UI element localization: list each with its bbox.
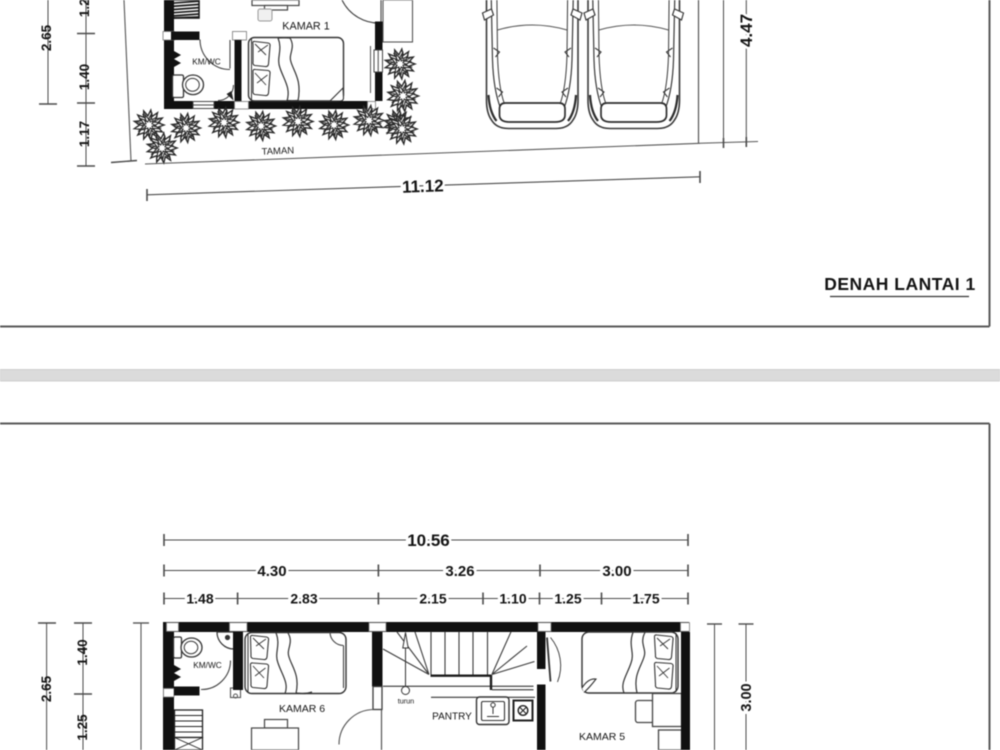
svg-text:1.25: 1.25 [75, 714, 90, 741]
svg-text:1.10: 1.10 [499, 591, 526, 607]
svg-text:3.00: 3.00 [602, 563, 631, 580]
svg-text:2.83: 2.83 [290, 591, 317, 607]
svg-text:TAMAN: TAMAN [261, 145, 294, 157]
svg-text:11.12: 11.12 [402, 176, 444, 196]
svg-text:2.15: 2.15 [419, 591, 446, 607]
svg-text:4.47: 4.47 [737, 14, 756, 47]
svg-text:2.65: 2.65 [39, 675, 54, 702]
svg-text:KM/WC: KM/WC [193, 660, 222, 670]
svg-text:KAMAR 5: KAMAR 5 [579, 731, 625, 743]
svg-text:10.56: 10.56 [407, 531, 450, 550]
svg-text:KM/WC: KM/WC [192, 57, 221, 67]
svg-text:2.65: 2.65 [39, 24, 54, 51]
svg-text:4.30: 4.30 [257, 563, 286, 580]
svg-text:1.40: 1.40 [75, 639, 90, 665]
svg-text:3.00: 3.00 [739, 683, 755, 711]
svg-text:1.48: 1.48 [186, 591, 213, 607]
svg-text:1.75: 1.75 [632, 591, 659, 607]
svg-text:1.17: 1.17 [77, 121, 92, 147]
svg-text:turun: turun [398, 697, 414, 706]
svg-text:1.25: 1.25 [77, 0, 92, 17]
svg-text:1.25: 1.25 [554, 591, 581, 607]
svg-text:KAMAR 6: KAMAR 6 [279, 703, 325, 715]
svg-text:1.40: 1.40 [77, 64, 92, 90]
svg-text:3.26: 3.26 [445, 563, 474, 580]
svg-text:DENAH LANTAI 1: DENAH LANTAI 1 [824, 274, 976, 294]
svg-text:KAMAR 1: KAMAR 1 [282, 21, 329, 33]
svg-text:PANTRY: PANTRY [432, 712, 472, 723]
